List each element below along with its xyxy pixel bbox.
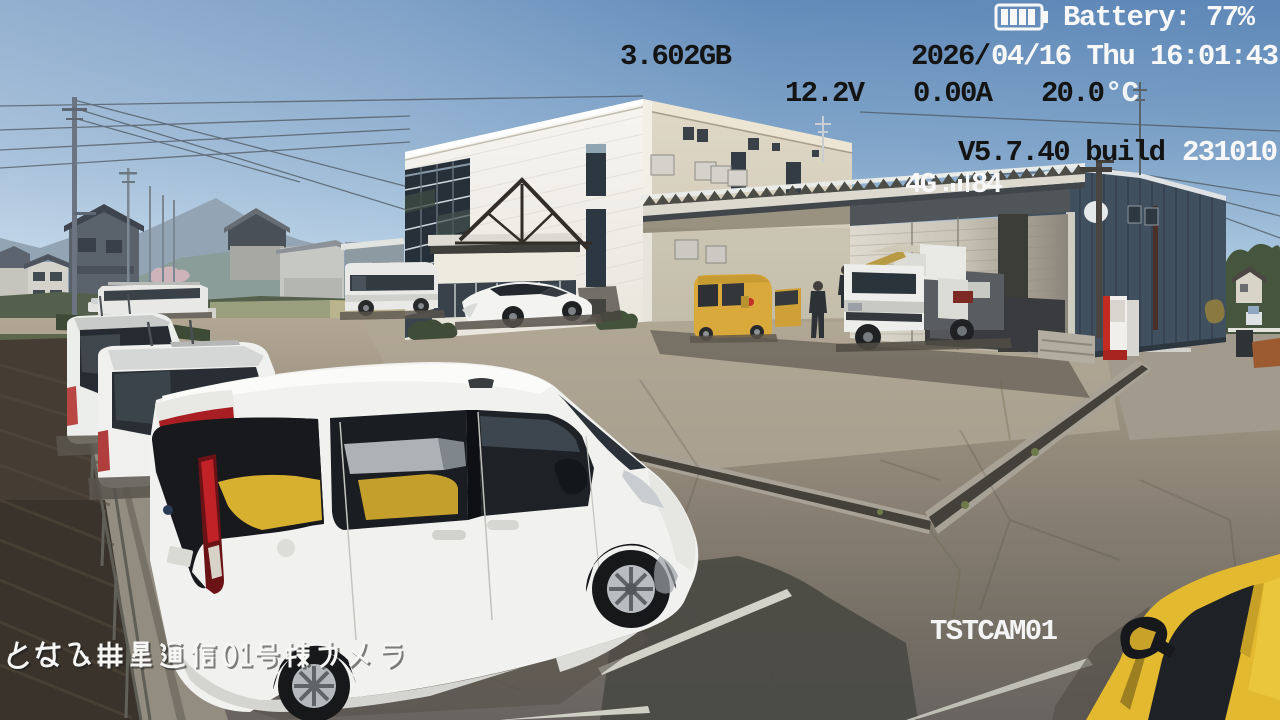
svg-text:20.0: 20.0	[1041, 77, 1105, 110]
svg-text:V5.7.40 build: V5.7.40 build	[958, 136, 1166, 169]
svg-text:12.2V: 12.2V	[785, 77, 866, 110]
svg-text:Battery: 77%: Battery: 77%	[1063, 1, 1256, 34]
svg-text:°C: °C	[1105, 77, 1139, 110]
svg-text:TSTCAM01: TSTCAM01	[930, 615, 1058, 648]
svg-text:3.602GB: 3.602GB	[620, 40, 732, 73]
svg-text:4G: 4G	[905, 168, 937, 201]
svg-text:231010: 231010	[1182, 136, 1278, 169]
svg-text:84: 84	[971, 168, 1003, 201]
svg-text:0.00A: 0.00A	[913, 77, 994, 110]
svg-text:2026/: 2026/	[911, 40, 991, 73]
svg-text:04/16 Thu 16:01:43: 04/16 Thu 16:01:43	[991, 40, 1279, 73]
